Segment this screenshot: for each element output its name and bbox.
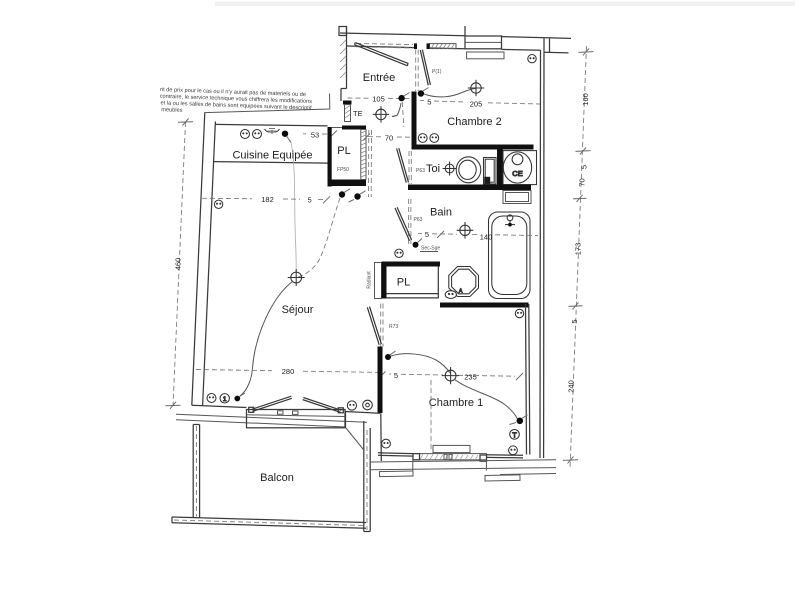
svg-text:205: 205 bbox=[470, 100, 483, 109]
svg-text:Radiant: Radiant bbox=[367, 271, 373, 289]
svg-text:5: 5 bbox=[570, 319, 579, 323]
svg-text:173: 173 bbox=[574, 243, 583, 256]
svg-text:70: 70 bbox=[578, 178, 587, 186]
svg-text:140: 140 bbox=[480, 233, 493, 242]
svg-text:Sec-Sge: Sec-Sge bbox=[421, 246, 440, 252]
svg-text:240: 240 bbox=[567, 380, 576, 393]
svg-text:460: 460 bbox=[174, 258, 183, 271]
svg-text:1: 1 bbox=[223, 396, 227, 403]
svg-text:Bain: Bain bbox=[430, 207, 452, 219]
svg-text:FP50: FP50 bbox=[337, 167, 349, 173]
svg-text:TE: TE bbox=[353, 109, 363, 118]
svg-text:P63: P63 bbox=[416, 168, 425, 174]
svg-text:5: 5 bbox=[427, 98, 431, 107]
svg-text:5: 5 bbox=[394, 371, 398, 380]
svg-text:Chambre 2: Chambre 2 bbox=[447, 116, 501, 128]
svg-text:Cuisine Equipée: Cuisine Equipée bbox=[232, 150, 312, 162]
svg-text:53: 53 bbox=[311, 130, 319, 139]
svg-text:P63: P63 bbox=[414, 217, 423, 223]
svg-text:182: 182 bbox=[261, 195, 274, 204]
svg-text:R73: R73 bbox=[389, 324, 398, 330]
svg-text:Toi: Toi bbox=[426, 163, 440, 175]
svg-text:70: 70 bbox=[385, 134, 393, 143]
svg-text:PL: PL bbox=[337, 145, 350, 157]
svg-text:Entrée: Entrée bbox=[363, 72, 395, 84]
svg-text:CE: CE bbox=[512, 169, 522, 178]
svg-text:5: 5 bbox=[308, 196, 312, 205]
svg-text:Séjour: Séjour bbox=[282, 304, 314, 316]
svg-text:5: 5 bbox=[425, 230, 429, 239]
svg-text:Balcon: Balcon bbox=[260, 472, 294, 484]
svg-text:T: T bbox=[512, 430, 517, 439]
svg-text:Chambre 1: Chambre 1 bbox=[429, 397, 483, 409]
svg-text:160: 160 bbox=[581, 93, 590, 106]
svg-text:235: 235 bbox=[464, 372, 477, 381]
svg-text:105: 105 bbox=[372, 95, 385, 104]
svg-text:meubles: meubles bbox=[161, 107, 183, 114]
svg-text:280: 280 bbox=[282, 367, 295, 376]
svg-text:P(1): P(1) bbox=[432, 69, 442, 75]
svg-text:5: 5 bbox=[580, 165, 589, 169]
svg-text:PL: PL bbox=[397, 277, 410, 289]
